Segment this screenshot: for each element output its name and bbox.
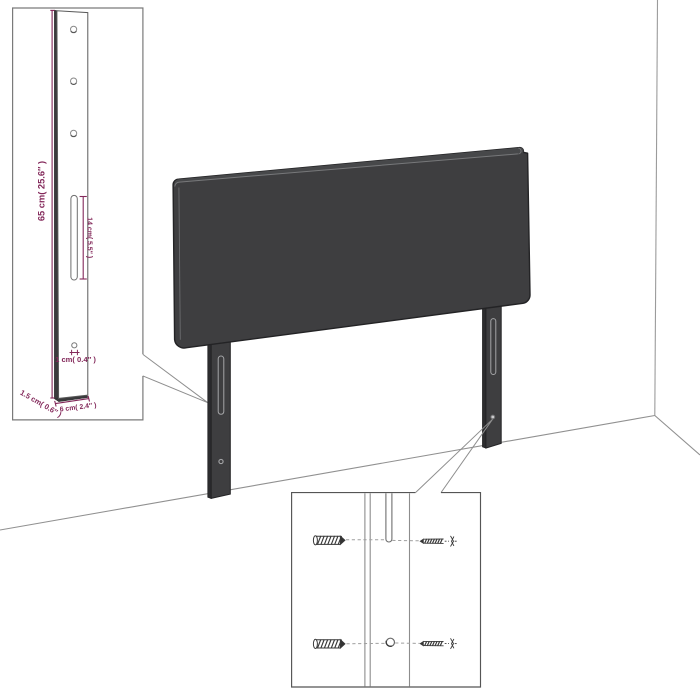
svg-text:1 cm( 0.4″ ): 1 cm( 0.4″ ) [55, 355, 96, 364]
svg-text:14 cm( 5.5″ ): 14 cm( 5.5″ ) [86, 217, 93, 258]
svg-text:65 cm( 25.6″ ): 65 cm( 25.6″ ) [37, 161, 47, 221]
